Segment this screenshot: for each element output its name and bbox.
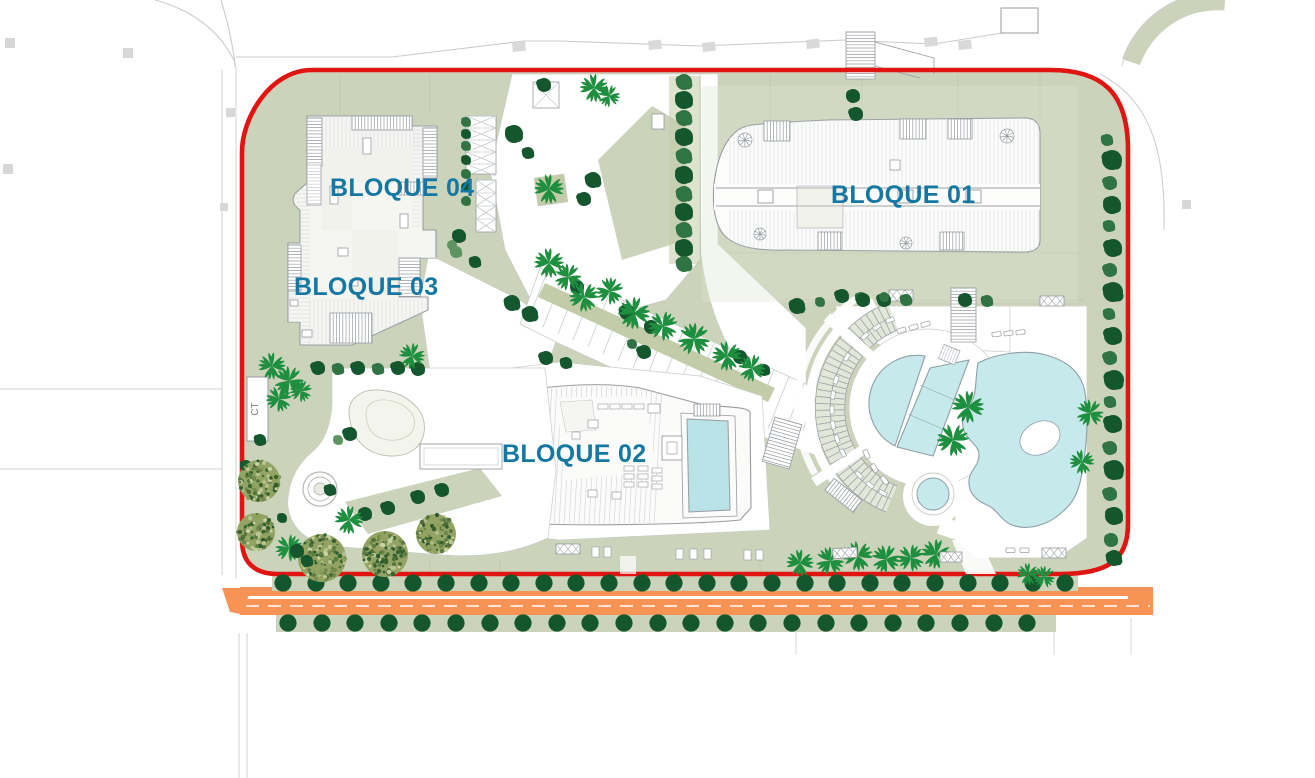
svg-text:CT: CT [250,402,261,415]
svg-text:BLOQUE 03: BLOQUE 03 [294,273,438,301]
svg-text:BLOQUE 01: BLOQUE 01 [831,181,975,209]
svg-text:BLOQUE 04: BLOQUE 04 [330,174,474,202]
svg-text:BLOQUE 02: BLOQUE 02 [502,440,646,468]
